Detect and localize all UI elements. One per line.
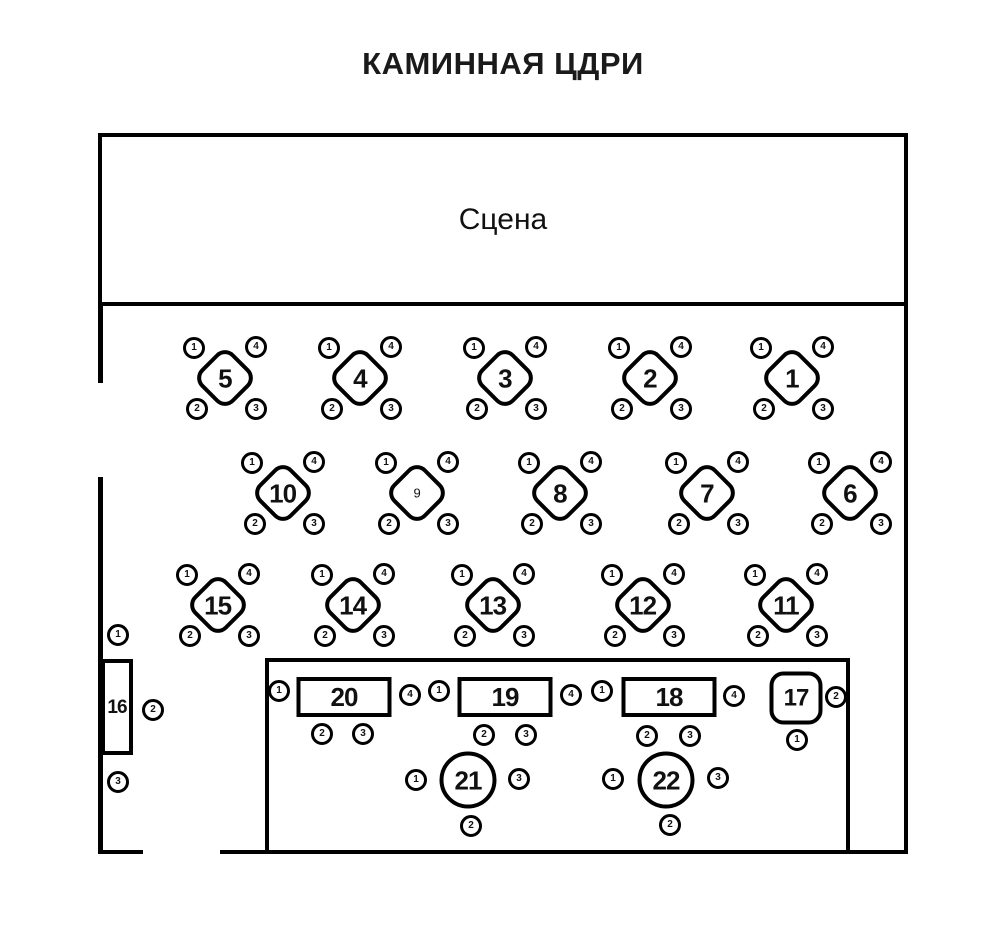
table-8-label: 8 (553, 480, 566, 506)
table-6-label: 6 (843, 480, 856, 506)
table-15-seat-4[interactable]: 4 (238, 563, 260, 585)
table-10-seat-1[interactable]: 1 (241, 452, 263, 474)
table-17-shape[interactable]: 17 (770, 672, 823, 725)
table-6-seat-4[interactable]: 4 (870, 451, 892, 473)
table-5-seat-2[interactable]: 2 (186, 398, 208, 420)
table-2-seat-2[interactable]: 2 (611, 398, 633, 420)
table-2-seat-3[interactable]: 3 (670, 398, 692, 420)
table-1-seat-2[interactable]: 2 (753, 398, 775, 420)
table-11-seat-1[interactable]: 1 (744, 564, 766, 586)
table-16-seat-3[interactable]: 3 (107, 771, 129, 793)
table-9-seat-4[interactable]: 4 (437, 451, 459, 473)
table-17-label: 17 (784, 686, 809, 710)
table-20-seat-4[interactable]: 4 (399, 684, 421, 706)
table-12-seat-4[interactable]: 4 (663, 563, 685, 585)
table-14-seat-1[interactable]: 1 (311, 564, 333, 586)
table-7-seat-2[interactable]: 2 (668, 513, 690, 535)
table-4-seat-3[interactable]: 3 (380, 398, 402, 420)
table-12-seat-2[interactable]: 2 (604, 625, 626, 647)
table-2-seat-4[interactable]: 4 (670, 336, 692, 358)
table-16-seat-2[interactable]: 2 (142, 699, 164, 721)
table-8-seat-3[interactable]: 3 (580, 513, 602, 535)
table-21-seat-1[interactable]: 1 (405, 769, 427, 791)
table-3-seat-3[interactable]: 3 (525, 398, 547, 420)
table-2-seat-1[interactable]: 1 (608, 337, 630, 359)
table-13-label: 13 (480, 592, 507, 618)
table-7-seat-4[interactable]: 4 (727, 451, 749, 473)
table-10-seat-3[interactable]: 3 (303, 513, 325, 535)
table-19-seat-3[interactable]: 3 (515, 724, 537, 746)
table-6-seat-1[interactable]: 1 (808, 452, 830, 474)
table-10-seat-4[interactable]: 4 (303, 451, 325, 473)
table-20-shape[interactable]: 20 (297, 677, 392, 717)
table-14-seat-2[interactable]: 2 (314, 625, 336, 647)
table-20-seat-1[interactable]: 1 (268, 680, 290, 702)
table-17-seat-1[interactable]: 1 (786, 729, 808, 751)
table-17-seat-2[interactable]: 2 (825, 686, 847, 708)
table-21-seat-2[interactable]: 2 (460, 815, 482, 837)
table-22-shape[interactable]: 22 (638, 752, 695, 809)
table-13-seat-1[interactable]: 1 (451, 564, 473, 586)
table-18-seat-1[interactable]: 1 (591, 680, 613, 702)
table-4-label: 4 (353, 365, 366, 391)
table-21-label: 21 (455, 767, 482, 793)
table-13-seat-4[interactable]: 4 (513, 563, 535, 585)
table-6-seat-2[interactable]: 2 (811, 513, 833, 535)
table-4-seat-1[interactable]: 1 (318, 337, 340, 359)
table-5-label: 5 (218, 365, 231, 391)
table-19-label: 19 (492, 684, 519, 710)
table-21-seat-3[interactable]: 3 (508, 768, 530, 790)
table-2-label: 2 (643, 365, 656, 391)
table-20-seat-2[interactable]: 2 (311, 723, 333, 745)
table-14-seat-3[interactable]: 3 (373, 625, 395, 647)
table-9-seat-3[interactable]: 3 (437, 513, 459, 535)
table-15-seat-2[interactable]: 2 (179, 625, 201, 647)
table-15-seat-3[interactable]: 3 (238, 625, 260, 647)
table-19-seat-4[interactable]: 4 (560, 684, 582, 706)
table-8-seat-4[interactable]: 4 (580, 451, 602, 473)
table-22-seat-3[interactable]: 3 (707, 767, 729, 789)
table-5-seat-1[interactable]: 1 (183, 337, 205, 359)
table-3-label: 3 (498, 365, 511, 391)
table-4-seat-4[interactable]: 4 (380, 336, 402, 358)
table-18-seat-3[interactable]: 3 (679, 725, 701, 747)
table-18-shape[interactable]: 18 (622, 677, 717, 717)
table-13-seat-2[interactable]: 2 (454, 625, 476, 647)
table-7-seat-3[interactable]: 3 (727, 513, 749, 535)
table-18-seat-2[interactable]: 2 (636, 725, 658, 747)
table-1-seat-1[interactable]: 1 (750, 337, 772, 359)
table-4-seat-2[interactable]: 2 (321, 398, 343, 420)
table-14-seat-4[interactable]: 4 (373, 563, 395, 585)
table-1-seat-4[interactable]: 4 (812, 336, 834, 358)
table-19-seat-1[interactable]: 1 (428, 680, 450, 702)
table-16-seat-1[interactable]: 1 (107, 624, 129, 646)
table-11-label: 11 (773, 592, 799, 618)
table-9-seat-1[interactable]: 1 (375, 452, 397, 474)
table-13-seat-3[interactable]: 3 (513, 625, 535, 647)
table-20-seat-3[interactable]: 3 (352, 723, 374, 745)
table-12-seat-1[interactable]: 1 (601, 564, 623, 586)
table-10-label: 10 (270, 480, 297, 506)
table-19-shape[interactable]: 19 (458, 677, 553, 717)
table-19-seat-2[interactable]: 2 (473, 724, 495, 746)
table-16-shape[interactable]: 16 (101, 659, 133, 755)
table-12-label: 12 (630, 592, 657, 618)
table-7-seat-1[interactable]: 1 (665, 452, 687, 474)
table-21-shape[interactable]: 21 (440, 752, 497, 809)
table-3-seat-2[interactable]: 2 (466, 398, 488, 420)
table-16-label: 16 (107, 698, 126, 717)
table-18-label: 18 (656, 684, 683, 710)
table-8-seat-1[interactable]: 1 (518, 452, 540, 474)
table-22-seat-1[interactable]: 1 (602, 768, 624, 790)
table-5-seat-3[interactable]: 3 (245, 398, 267, 420)
table-15-label: 15 (205, 592, 232, 618)
table-3-seat-1[interactable]: 1 (463, 337, 485, 359)
table-10-seat-2[interactable]: 2 (244, 513, 266, 535)
table-9-seat-2[interactable]: 2 (378, 513, 400, 535)
table-7-label: 7 (700, 480, 713, 506)
table-11-seat-4[interactable]: 4 (806, 563, 828, 585)
table-22-label: 22 (653, 767, 680, 793)
table-8-seat-2[interactable]: 2 (521, 513, 543, 535)
table-1-seat-3[interactable]: 3 (812, 398, 834, 420)
table-11-seat-3[interactable]: 3 (806, 625, 828, 647)
tables-layer: 5142341423314232142311423101423914238142… (0, 0, 992, 938)
table-1-label: 1 (785, 365, 798, 391)
table-3-seat-4[interactable]: 4 (525, 336, 547, 358)
table-5-seat-4[interactable]: 4 (245, 336, 267, 358)
table-18-seat-4[interactable]: 4 (723, 685, 745, 707)
table-6-seat-3[interactable]: 3 (870, 513, 892, 535)
table-9-label: 9 (413, 486, 420, 499)
table-12-seat-3[interactable]: 3 (663, 625, 685, 647)
table-14-label: 14 (340, 592, 367, 618)
table-11-seat-2[interactable]: 2 (747, 625, 769, 647)
table-15-seat-1[interactable]: 1 (176, 564, 198, 586)
table-22-seat-2[interactable]: 2 (659, 814, 681, 836)
table-20-label: 20 (331, 684, 358, 710)
